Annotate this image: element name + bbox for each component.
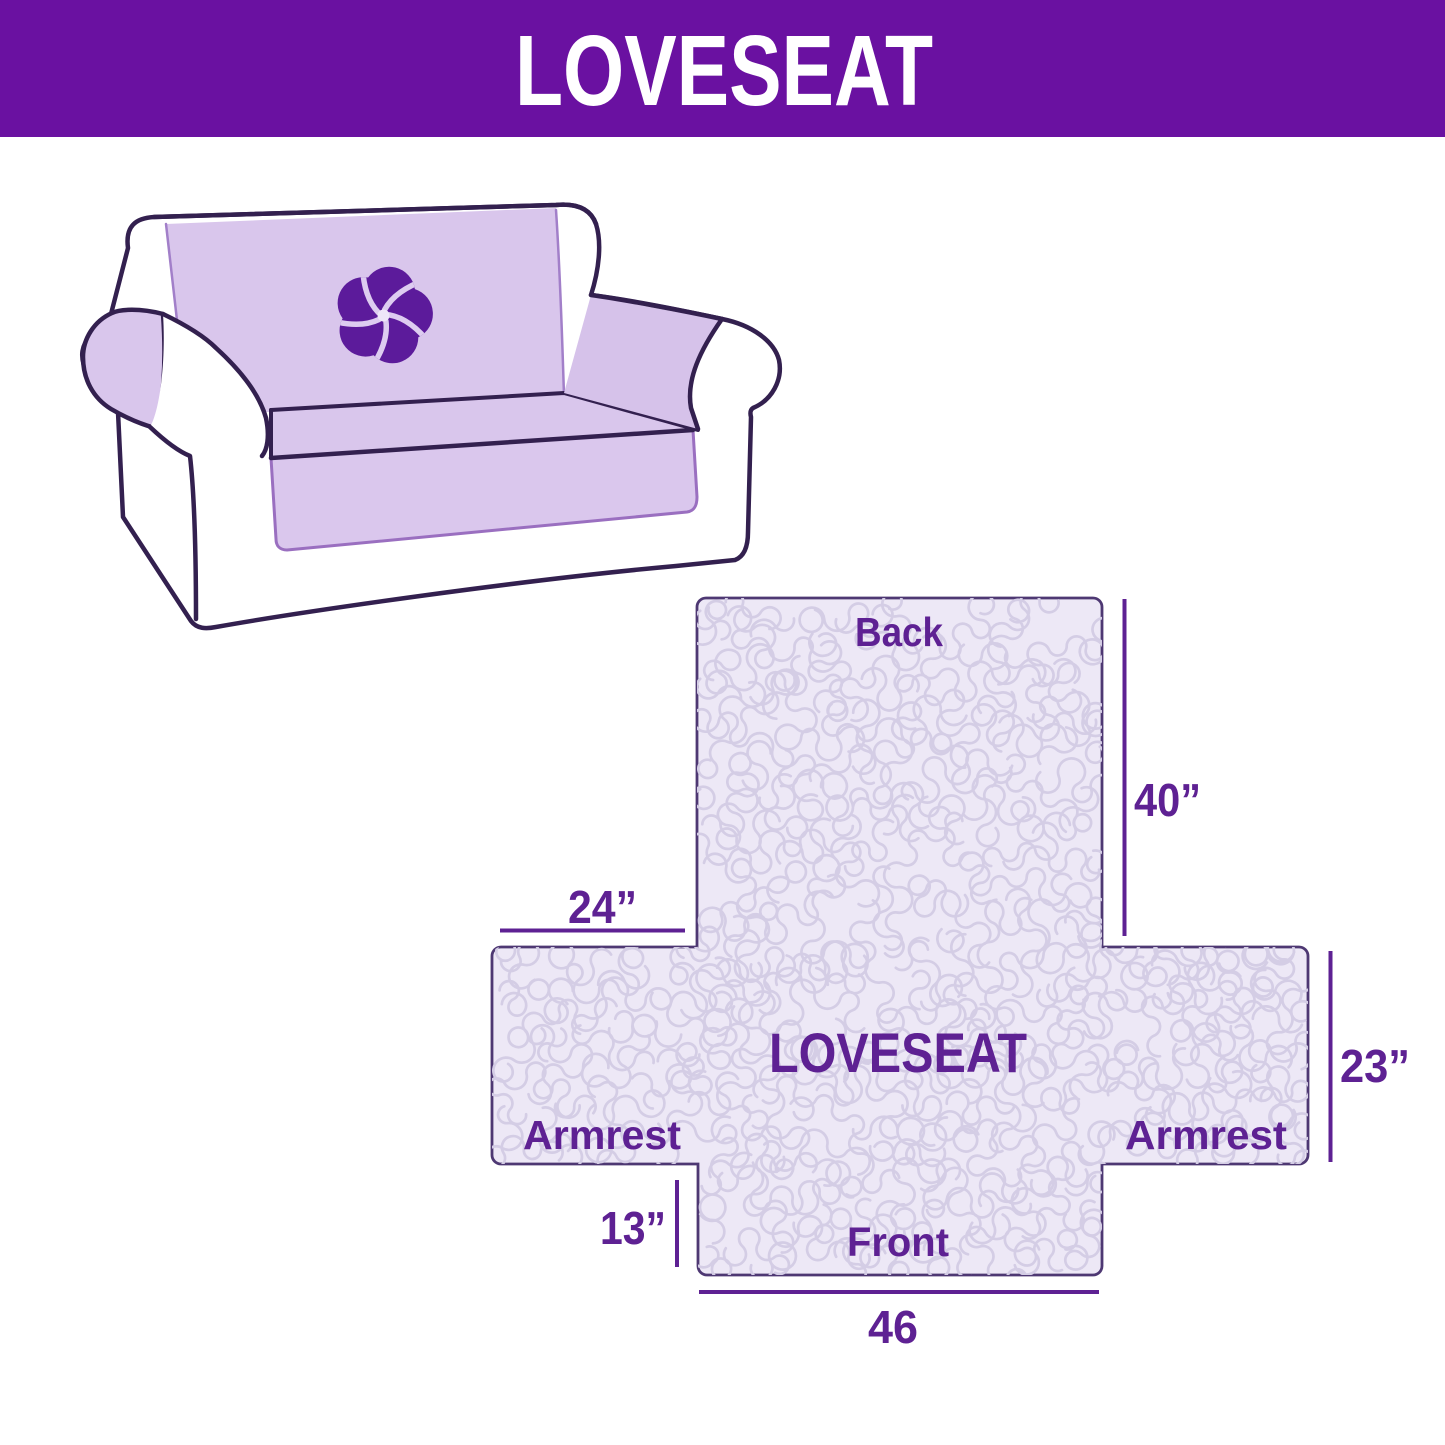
- svg-text:LOVESEAT: LOVESEAT: [769, 1021, 1027, 1084]
- svg-text:13”: 13”: [600, 1202, 666, 1254]
- svg-text:Armrest: Armrest: [523, 1112, 681, 1158]
- svg-text:Front: Front: [847, 1219, 949, 1265]
- svg-text:23”: 23”: [1340, 1040, 1410, 1092]
- svg-text:40”: 40”: [1134, 774, 1201, 826]
- svg-text:24”: 24”: [568, 881, 637, 933]
- svg-text:Back: Back: [855, 609, 943, 655]
- svg-text:46: 46: [868, 1301, 918, 1353]
- svg-text:Armrest: Armrest: [1125, 1112, 1287, 1158]
- svg-text:LOVESEAT: LOVESEAT: [515, 15, 933, 127]
